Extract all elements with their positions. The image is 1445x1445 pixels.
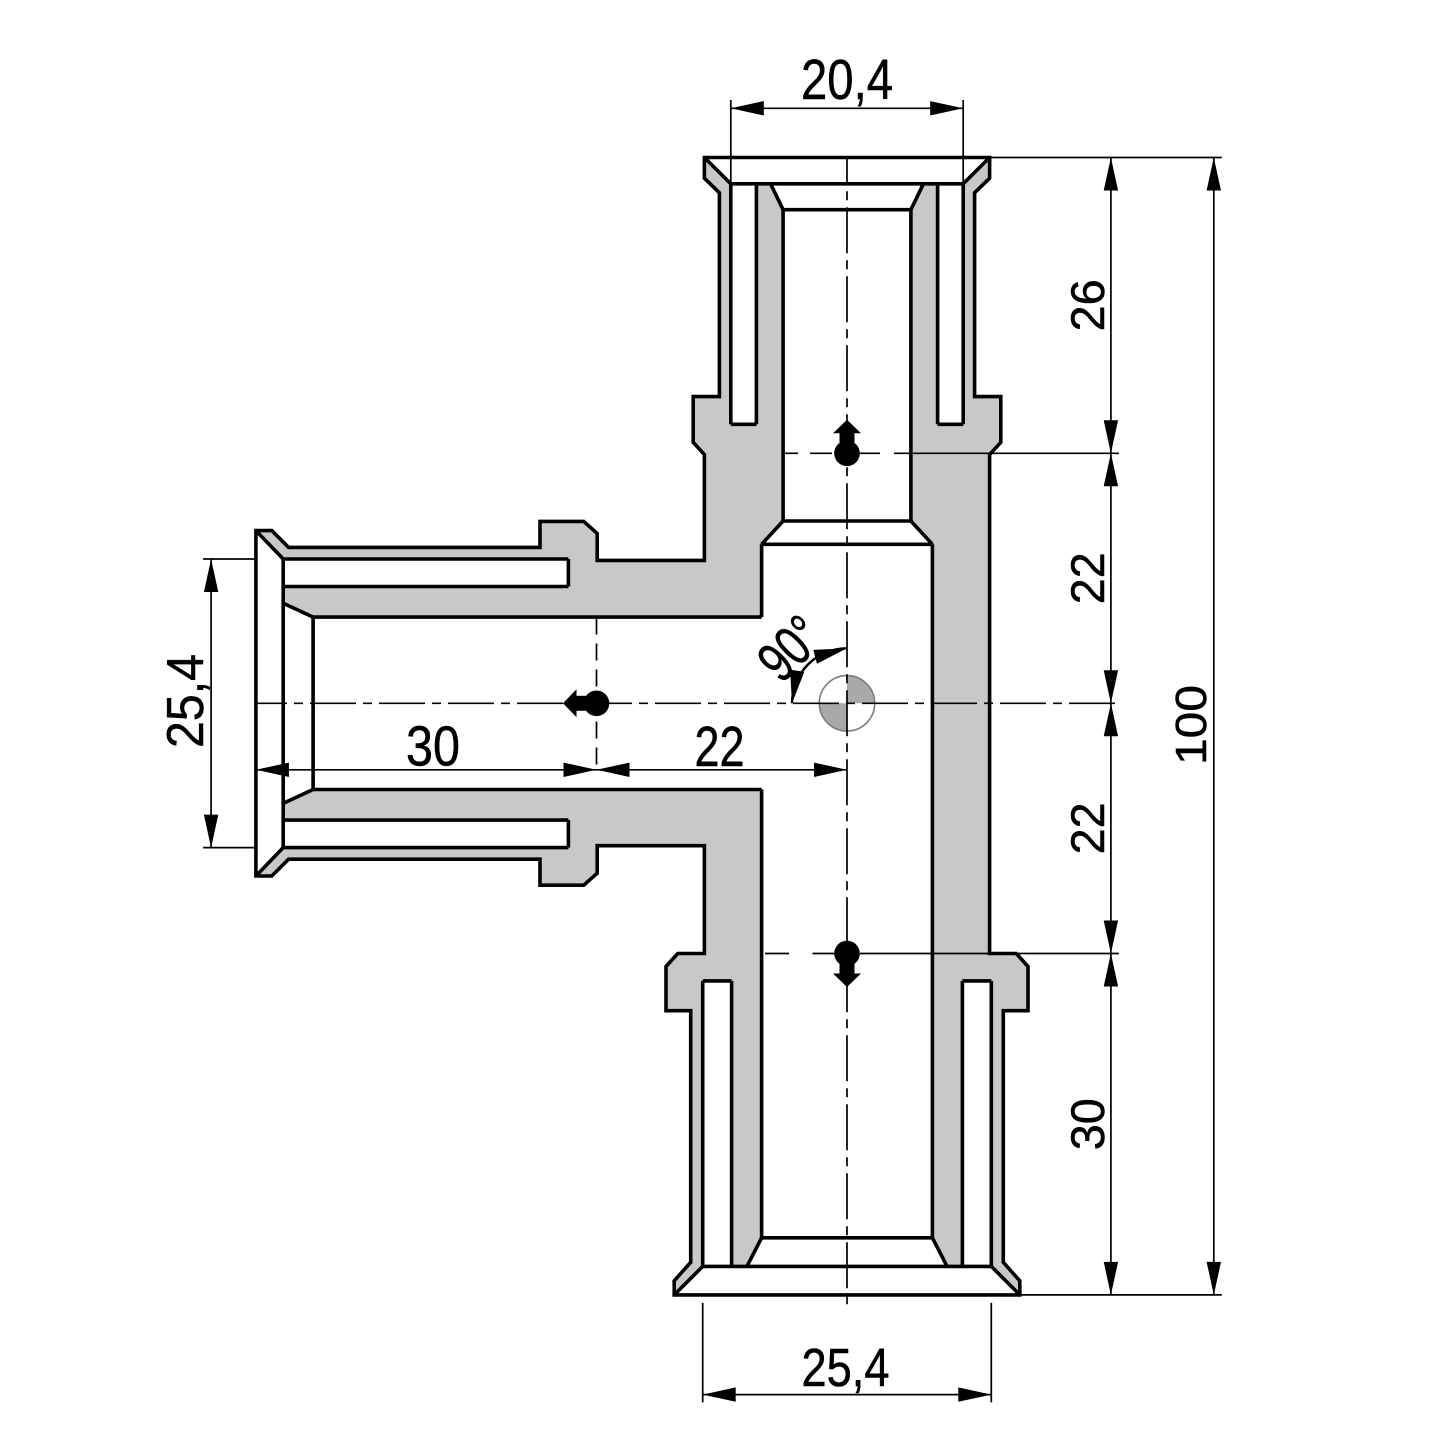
svg-text:100: 100 (1167, 685, 1216, 765)
svg-text:30: 30 (406, 715, 460, 779)
svg-text:22: 22 (695, 715, 745, 779)
svg-text:25,4: 25,4 (157, 654, 215, 748)
svg-text:22: 22 (1061, 552, 1114, 604)
svg-text:30: 30 (1061, 1098, 1114, 1150)
svg-text:26: 26 (1061, 279, 1114, 331)
svg-text:25,4: 25,4 (802, 1338, 890, 1398)
svg-text:20,4: 20,4 (801, 48, 893, 112)
svg-text:22: 22 (1061, 802, 1114, 854)
